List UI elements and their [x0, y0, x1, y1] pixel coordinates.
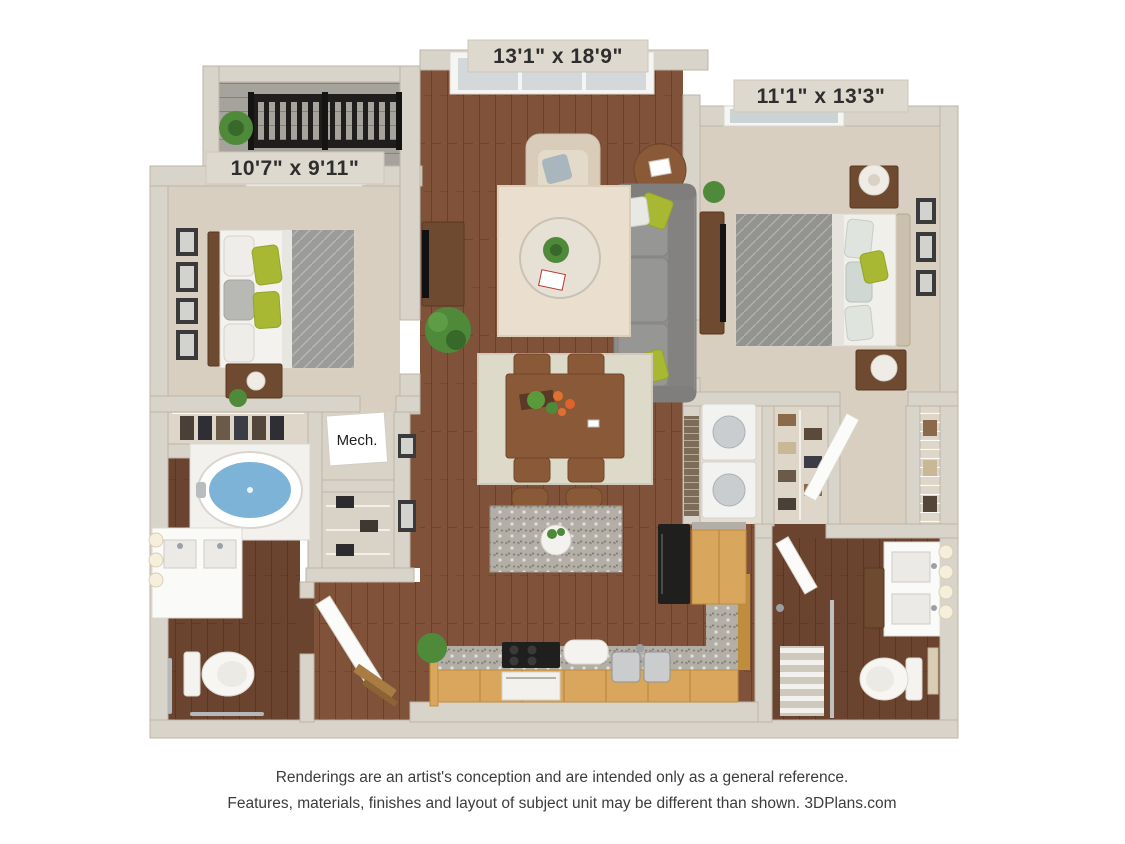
vanity-sconce-right [939, 545, 953, 559]
bathroom-left-vanity [152, 528, 242, 618]
outer-wall-right [940, 106, 958, 738]
living-dimension-label: 13'1" x 18'9" [493, 45, 623, 68]
disclaimer-line2: Features, materials, finishes and layout… [227, 795, 896, 812]
bathroom-right-vanity [884, 542, 940, 636]
bedroom-right-dresser [700, 212, 726, 334]
bedroom-right-wall-art [916, 198, 936, 296]
bedroom-left-dimension-label: 10'7" x 9'11" [231, 157, 360, 180]
floor-plan-svg: Mech. [0, 0, 1125, 844]
bedroom-right-dimension-label: 11'1" x 13'3" [757, 85, 886, 108]
linen-cabinet [864, 568, 884, 628]
living-plant [425, 307, 471, 353]
dining-table [506, 374, 624, 458]
disclaimer: Renderings are an artist's conception an… [227, 769, 896, 812]
dining-area [478, 354, 652, 484]
tv-console [422, 222, 464, 306]
pantry-cabinet [692, 522, 746, 604]
towel-rack [928, 648, 938, 694]
bedroom-left-lamp [247, 372, 265, 390]
disclaimer-line1: Renderings are an artist's conception an… [276, 769, 849, 786]
closet-right-shelves [920, 406, 940, 524]
bedroom-right-bed [736, 214, 910, 346]
bathroom-right-toilet [860, 658, 922, 700]
mech-label: Mech. [337, 432, 378, 449]
bathroom-left-toilet [184, 652, 254, 696]
outer-wall-bottom [150, 720, 958, 738]
vanity-sconce [149, 533, 163, 547]
bathtub [190, 444, 310, 540]
floorplan-page: Mech. [0, 0, 1125, 844]
mech-closet: Mech. [326, 412, 387, 466]
coffee-table [520, 218, 600, 298]
outer-wall-left [150, 166, 168, 738]
kitchen-plant [417, 633, 447, 663]
bedroom-left-bed [208, 230, 354, 368]
